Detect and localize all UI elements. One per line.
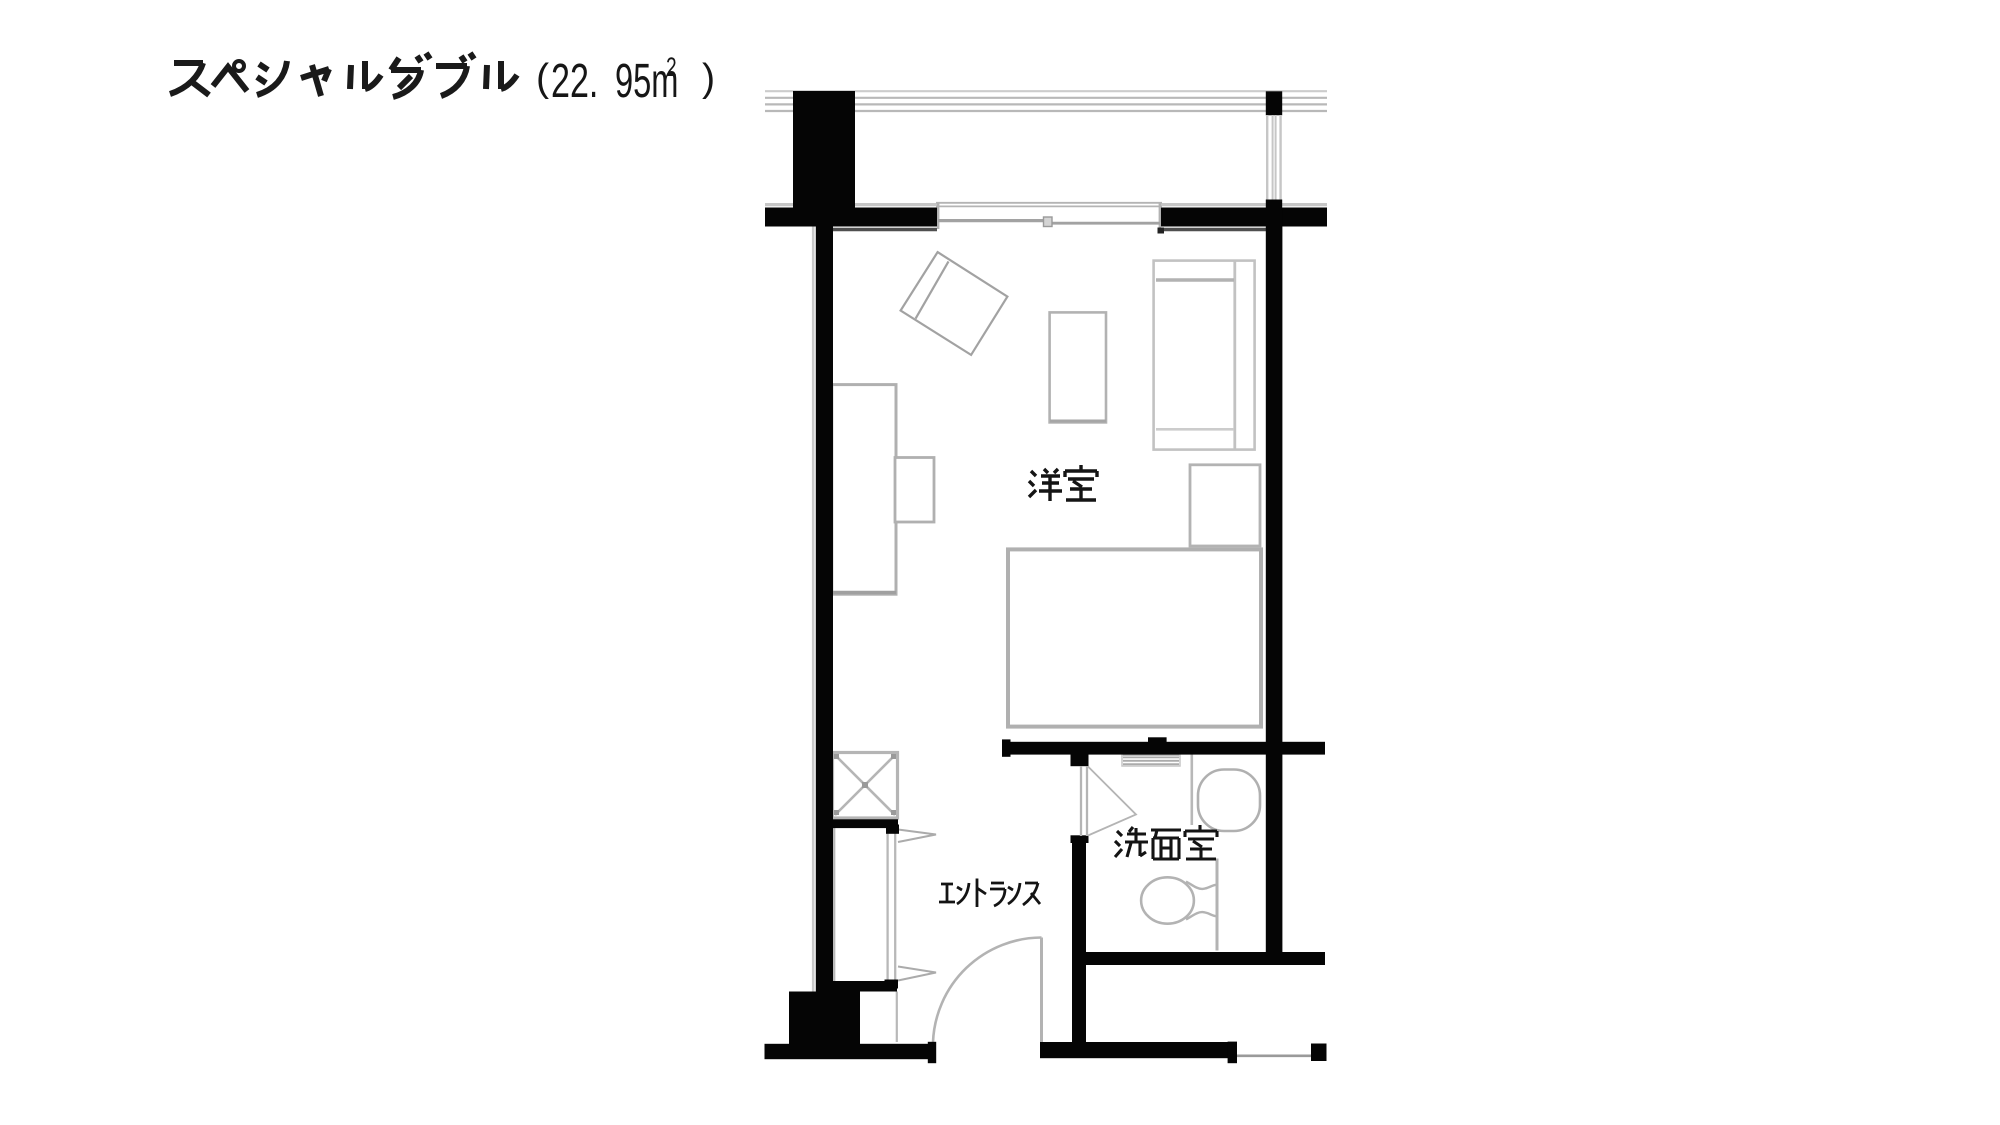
svg-text:): ) [702,57,715,100]
svg-text:(: ( [536,57,549,100]
svg-text:22.: 22. [551,53,598,107]
svg-text:2: 2 [666,52,677,82]
